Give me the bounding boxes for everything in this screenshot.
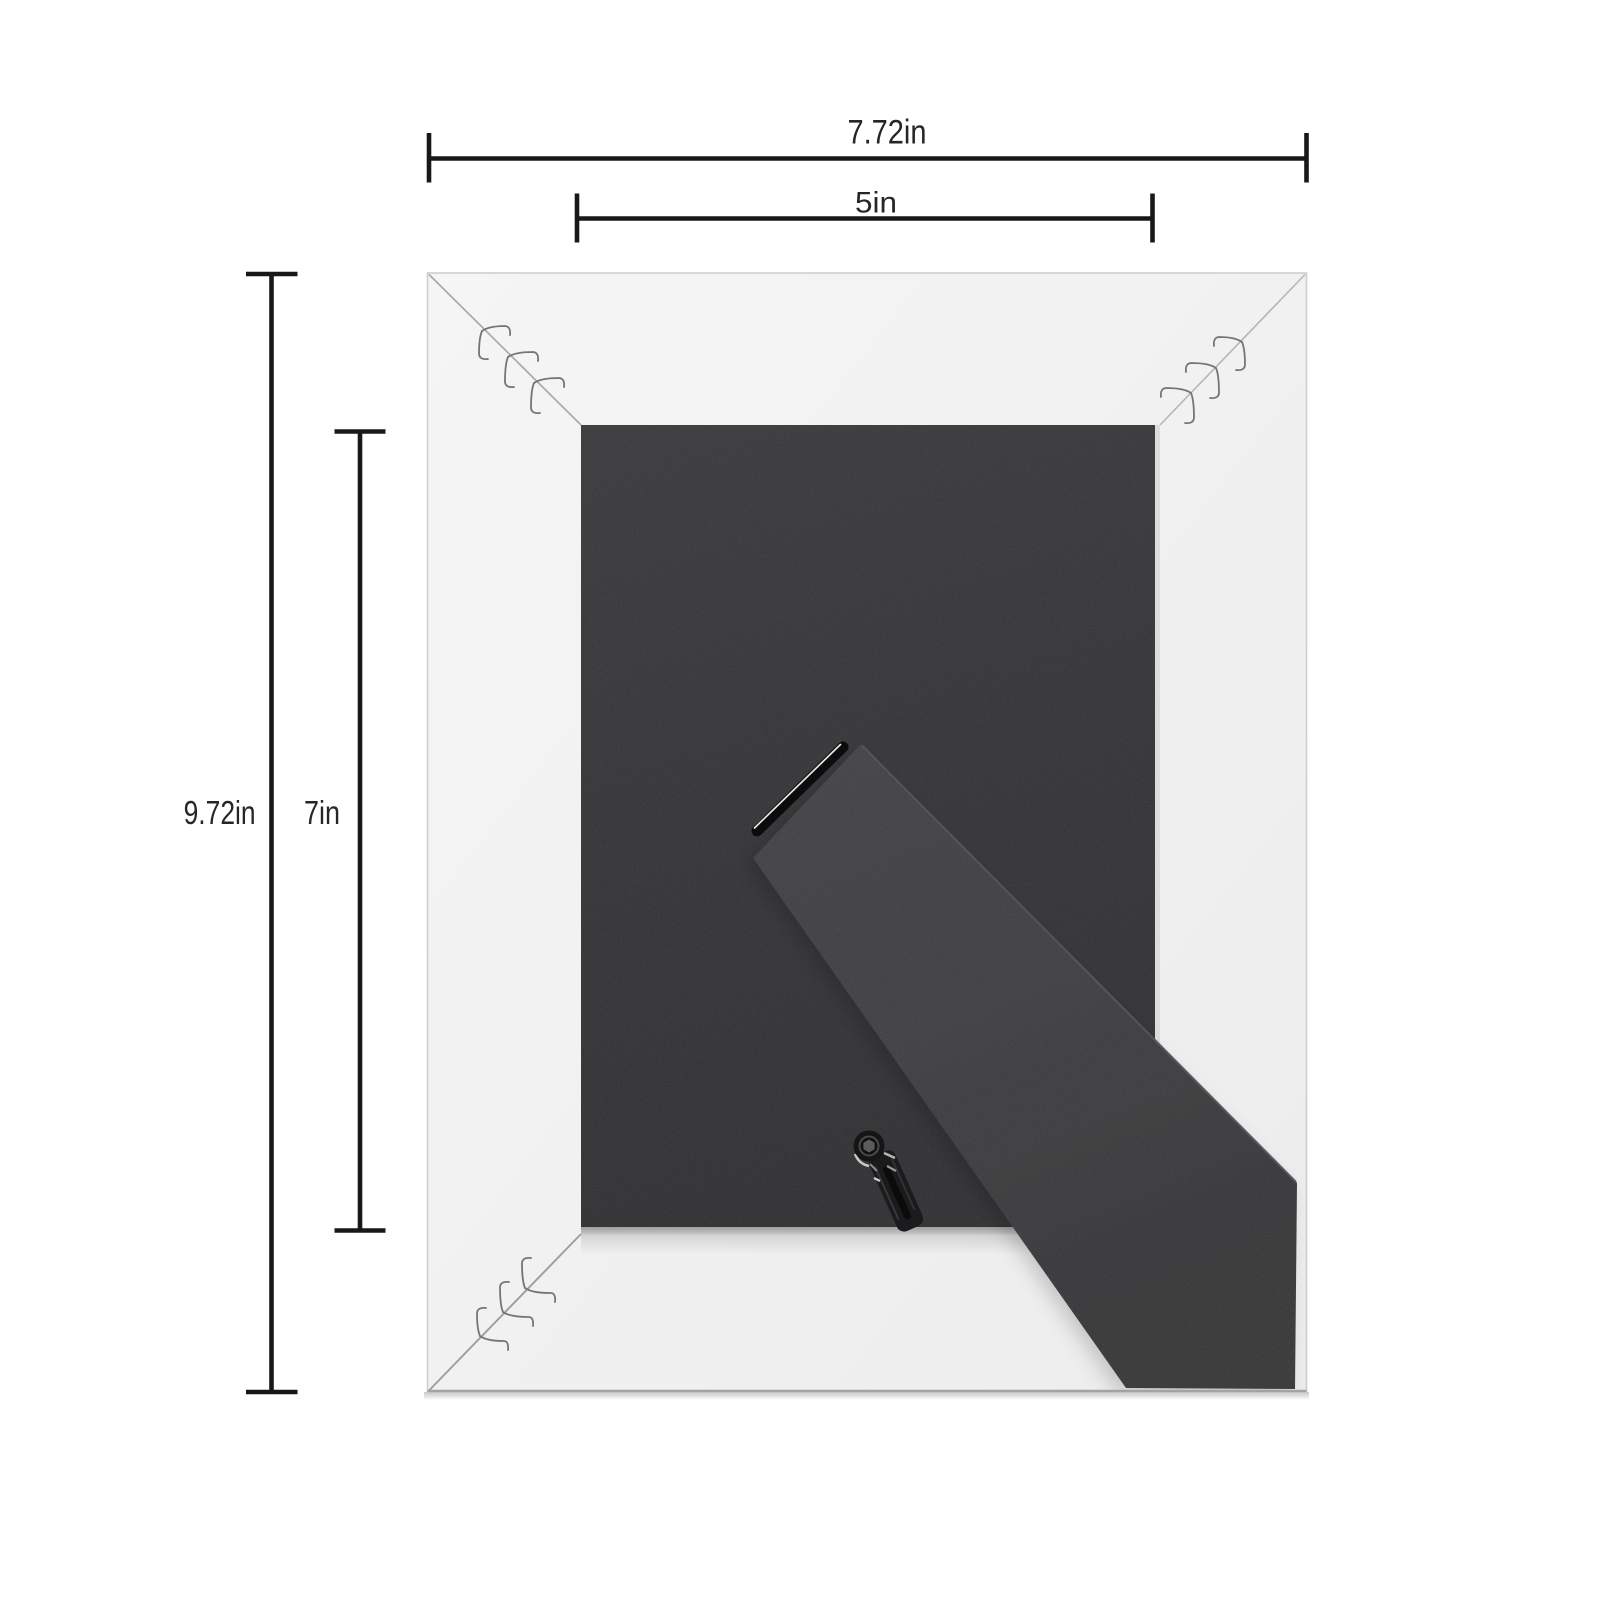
svg-text:7in: 7in bbox=[304, 794, 340, 831]
svg-text:5in: 5in bbox=[855, 187, 897, 220]
svg-text:7.72in: 7.72in bbox=[848, 114, 927, 152]
svg-text:9.72in: 9.72in bbox=[184, 794, 256, 831]
